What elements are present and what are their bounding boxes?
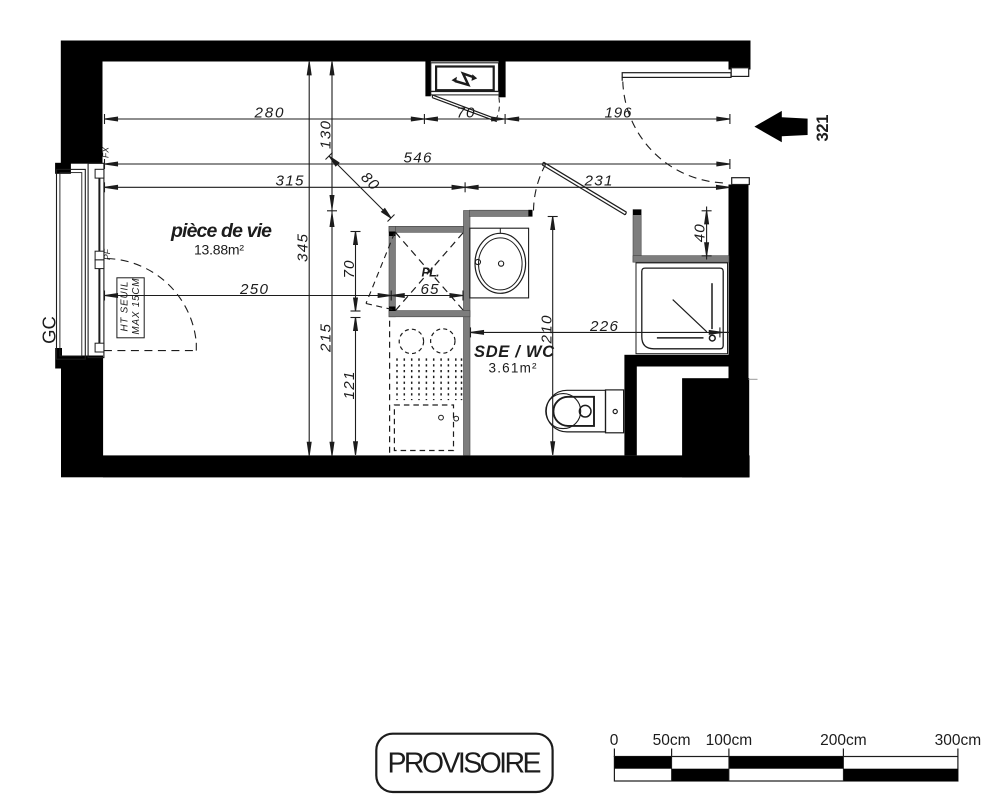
svg-text:546: 546 — [404, 149, 433, 166]
svg-text:215: 215 — [318, 323, 335, 353]
svg-text:315: 315 — [276, 173, 305, 190]
svg-text:70: 70 — [341, 260, 358, 279]
svg-text:210: 210 — [539, 315, 556, 345]
svg-text:70: 70 — [457, 105, 476, 122]
svg-text:345: 345 — [295, 233, 312, 262]
svg-text:321: 321 — [814, 115, 832, 142]
svg-text:HT SEUIL: HT SEUIL — [120, 282, 131, 332]
svg-text:MAX 15CM: MAX 15CM — [131, 278, 142, 335]
svg-text:130: 130 — [318, 120, 335, 149]
svg-text:250: 250 — [239, 281, 269, 298]
svg-text:121: 121 — [341, 372, 358, 400]
svg-text:PL.: PL. — [422, 266, 440, 280]
svg-text:226: 226 — [589, 318, 619, 335]
svg-text:200cm: 200cm — [820, 732, 867, 749]
svg-text:GC: GC — [39, 316, 60, 344]
svg-text:65: 65 — [421, 281, 440, 298]
svg-text:231: 231 — [584, 173, 613, 190]
svg-text:196: 196 — [605, 104, 633, 121]
svg-text:3.61m²: 3.61m² — [489, 361, 538, 376]
svg-text:pièce de vie: pièce de vie — [170, 220, 272, 242]
svg-text:13.88m²: 13.88m² — [194, 242, 244, 258]
svg-text:280: 280 — [254, 104, 285, 121]
svg-text:40: 40 — [692, 224, 709, 243]
svg-text:PF: PF — [102, 248, 112, 260]
svg-text:50cm: 50cm — [653, 732, 691, 749]
svg-text:PROVISOIRE: PROVISOIRE — [388, 748, 542, 780]
svg-text:300cm: 300cm — [935, 732, 982, 749]
svg-text:0: 0 — [610, 732, 619, 749]
svg-text:SDE / WC: SDE / WC — [474, 343, 555, 361]
svg-text:100cm: 100cm — [706, 732, 753, 749]
svg-text:FX: FX — [101, 147, 111, 158]
